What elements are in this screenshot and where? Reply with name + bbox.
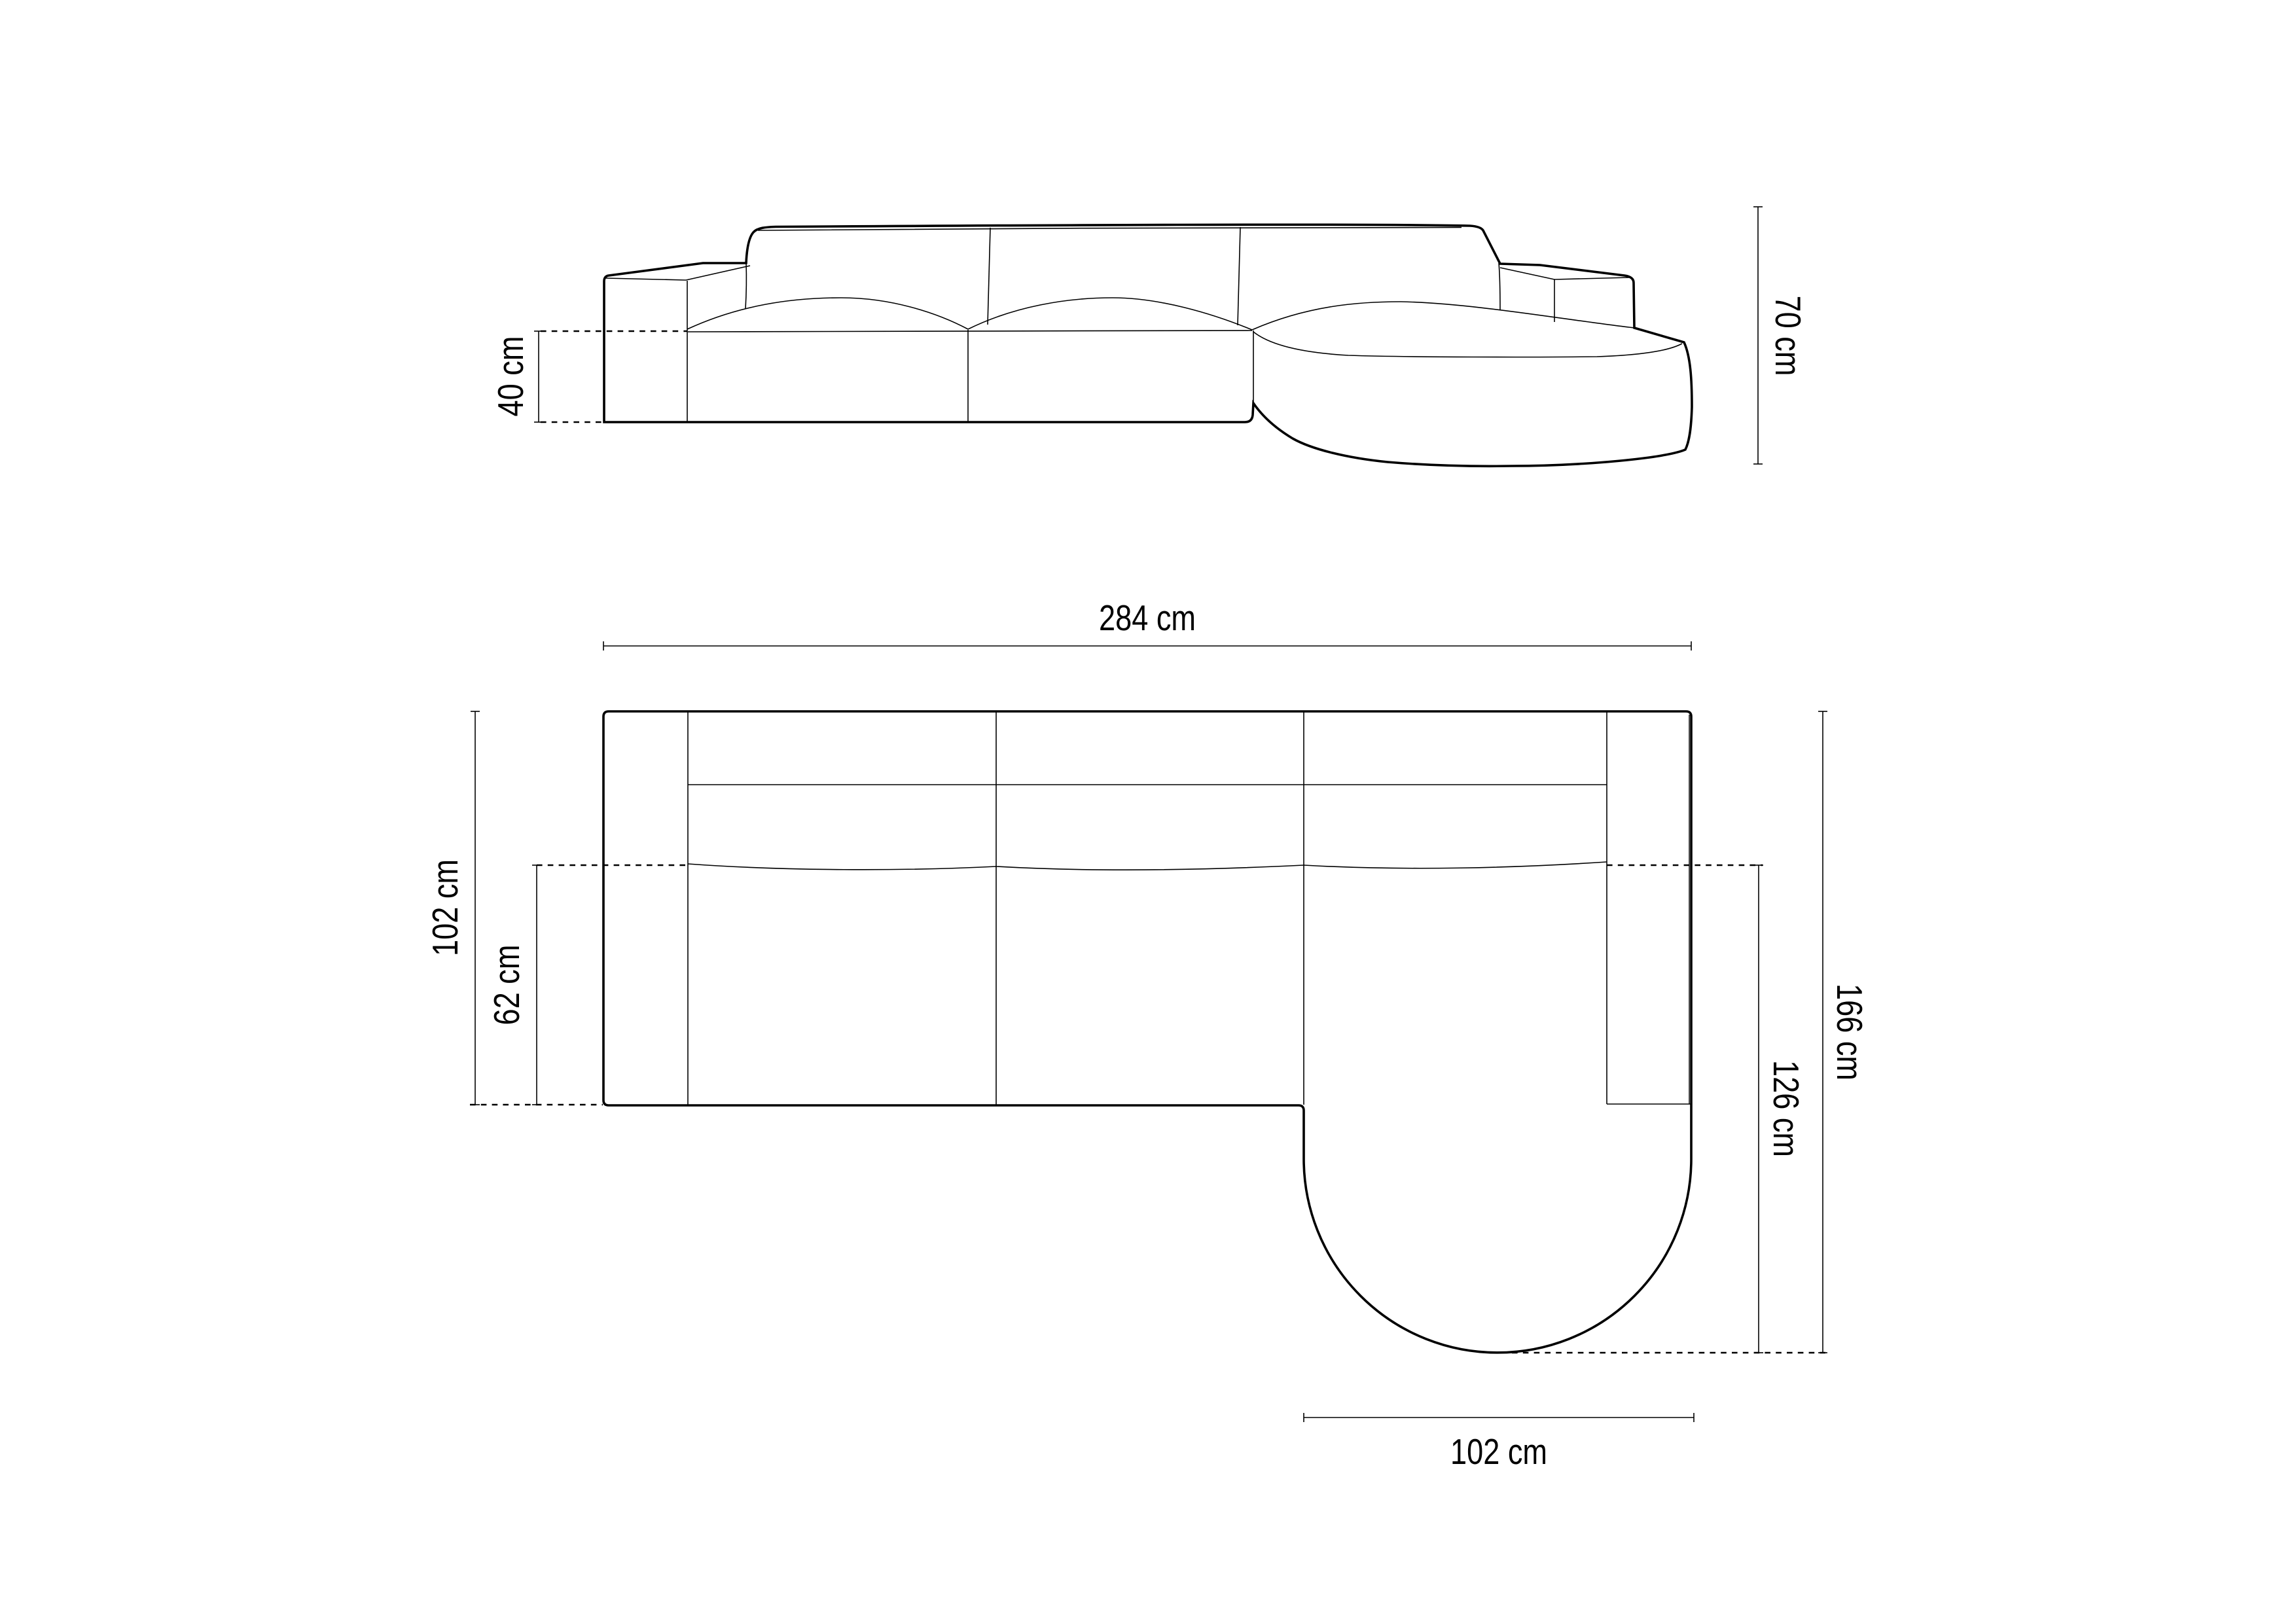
svg-text:284 cm: 284 cm — [1099, 597, 1196, 638]
svg-text:40 cm: 40 cm — [490, 336, 531, 417]
svg-text:102 cm: 102 cm — [425, 859, 465, 956]
svg-text:126 cm: 126 cm — [1766, 1060, 1806, 1157]
svg-text:70 cm: 70 cm — [1768, 296, 1808, 376]
svg-text:166 cm: 166 cm — [1829, 984, 1870, 1080]
svg-text:102 cm: 102 cm — [1450, 1431, 1547, 1472]
svg-text:62 cm: 62 cm — [486, 945, 527, 1026]
